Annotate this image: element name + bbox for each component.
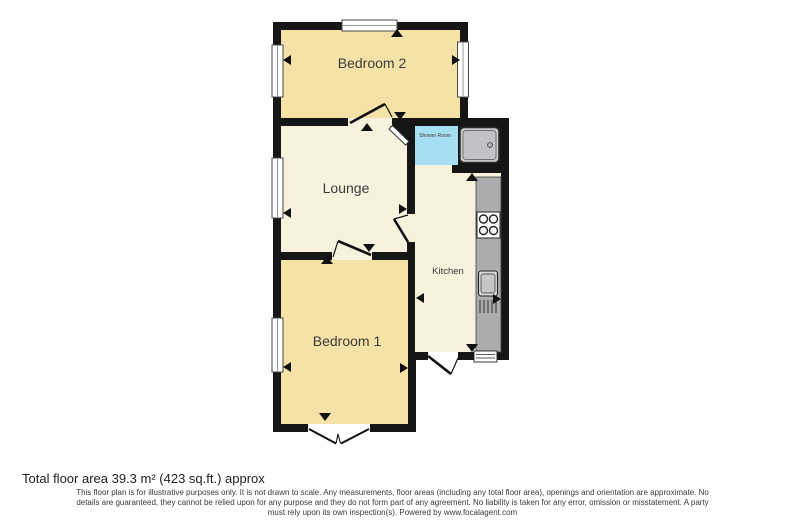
label-bedroom2: Bedroom 2: [338, 55, 407, 71]
window-bedroom2-right-icon: [458, 42, 469, 97]
label-bedroom1: Bedroom 1: [313, 333, 382, 349]
disclaimer-line: must rely upon its own inspection(s). Po…: [0, 508, 785, 518]
room-bedroom2: [281, 30, 460, 118]
label-shower-room: Shower Room: [419, 133, 451, 139]
window-bedroom2-left-icon: [272, 45, 283, 97]
floorplan-page: Bedroom 2 Lounge Shower Room Kitchen Bed…: [0, 0, 785, 523]
disclaimer: This floor plan is for illustrative purp…: [0, 488, 785, 518]
floor-plan: Bedroom 2 Lounge Shower Room Kitchen Bed…: [0, 0, 785, 523]
window-lounge-left-icon: [272, 158, 283, 218]
disclaimer-line: details are guaranteed, they cannot be r…: [0, 498, 785, 508]
label-kitchen: Kitchen: [432, 266, 464, 277]
total-floor-area: Total floor area 39.3 m² (423 sq.ft.) ap…: [22, 471, 785, 486]
counter-end-unit: [474, 351, 497, 362]
hob-icon: [477, 212, 500, 238]
footer: Total floor area 39.3 m² (423 sq.ft.) ap…: [0, 471, 785, 518]
window-bedroom2-top-icon: [342, 20, 397, 31]
room-shower: [415, 126, 458, 165]
disclaimer-line: This floor plan is for illustrative purp…: [0, 488, 785, 498]
window-bedroom1-left-icon: [272, 318, 283, 372]
label-lounge: Lounge: [323, 180, 370, 196]
kitchen-counter: [474, 177, 501, 362]
shower-tray-icon: [460, 128, 499, 163]
